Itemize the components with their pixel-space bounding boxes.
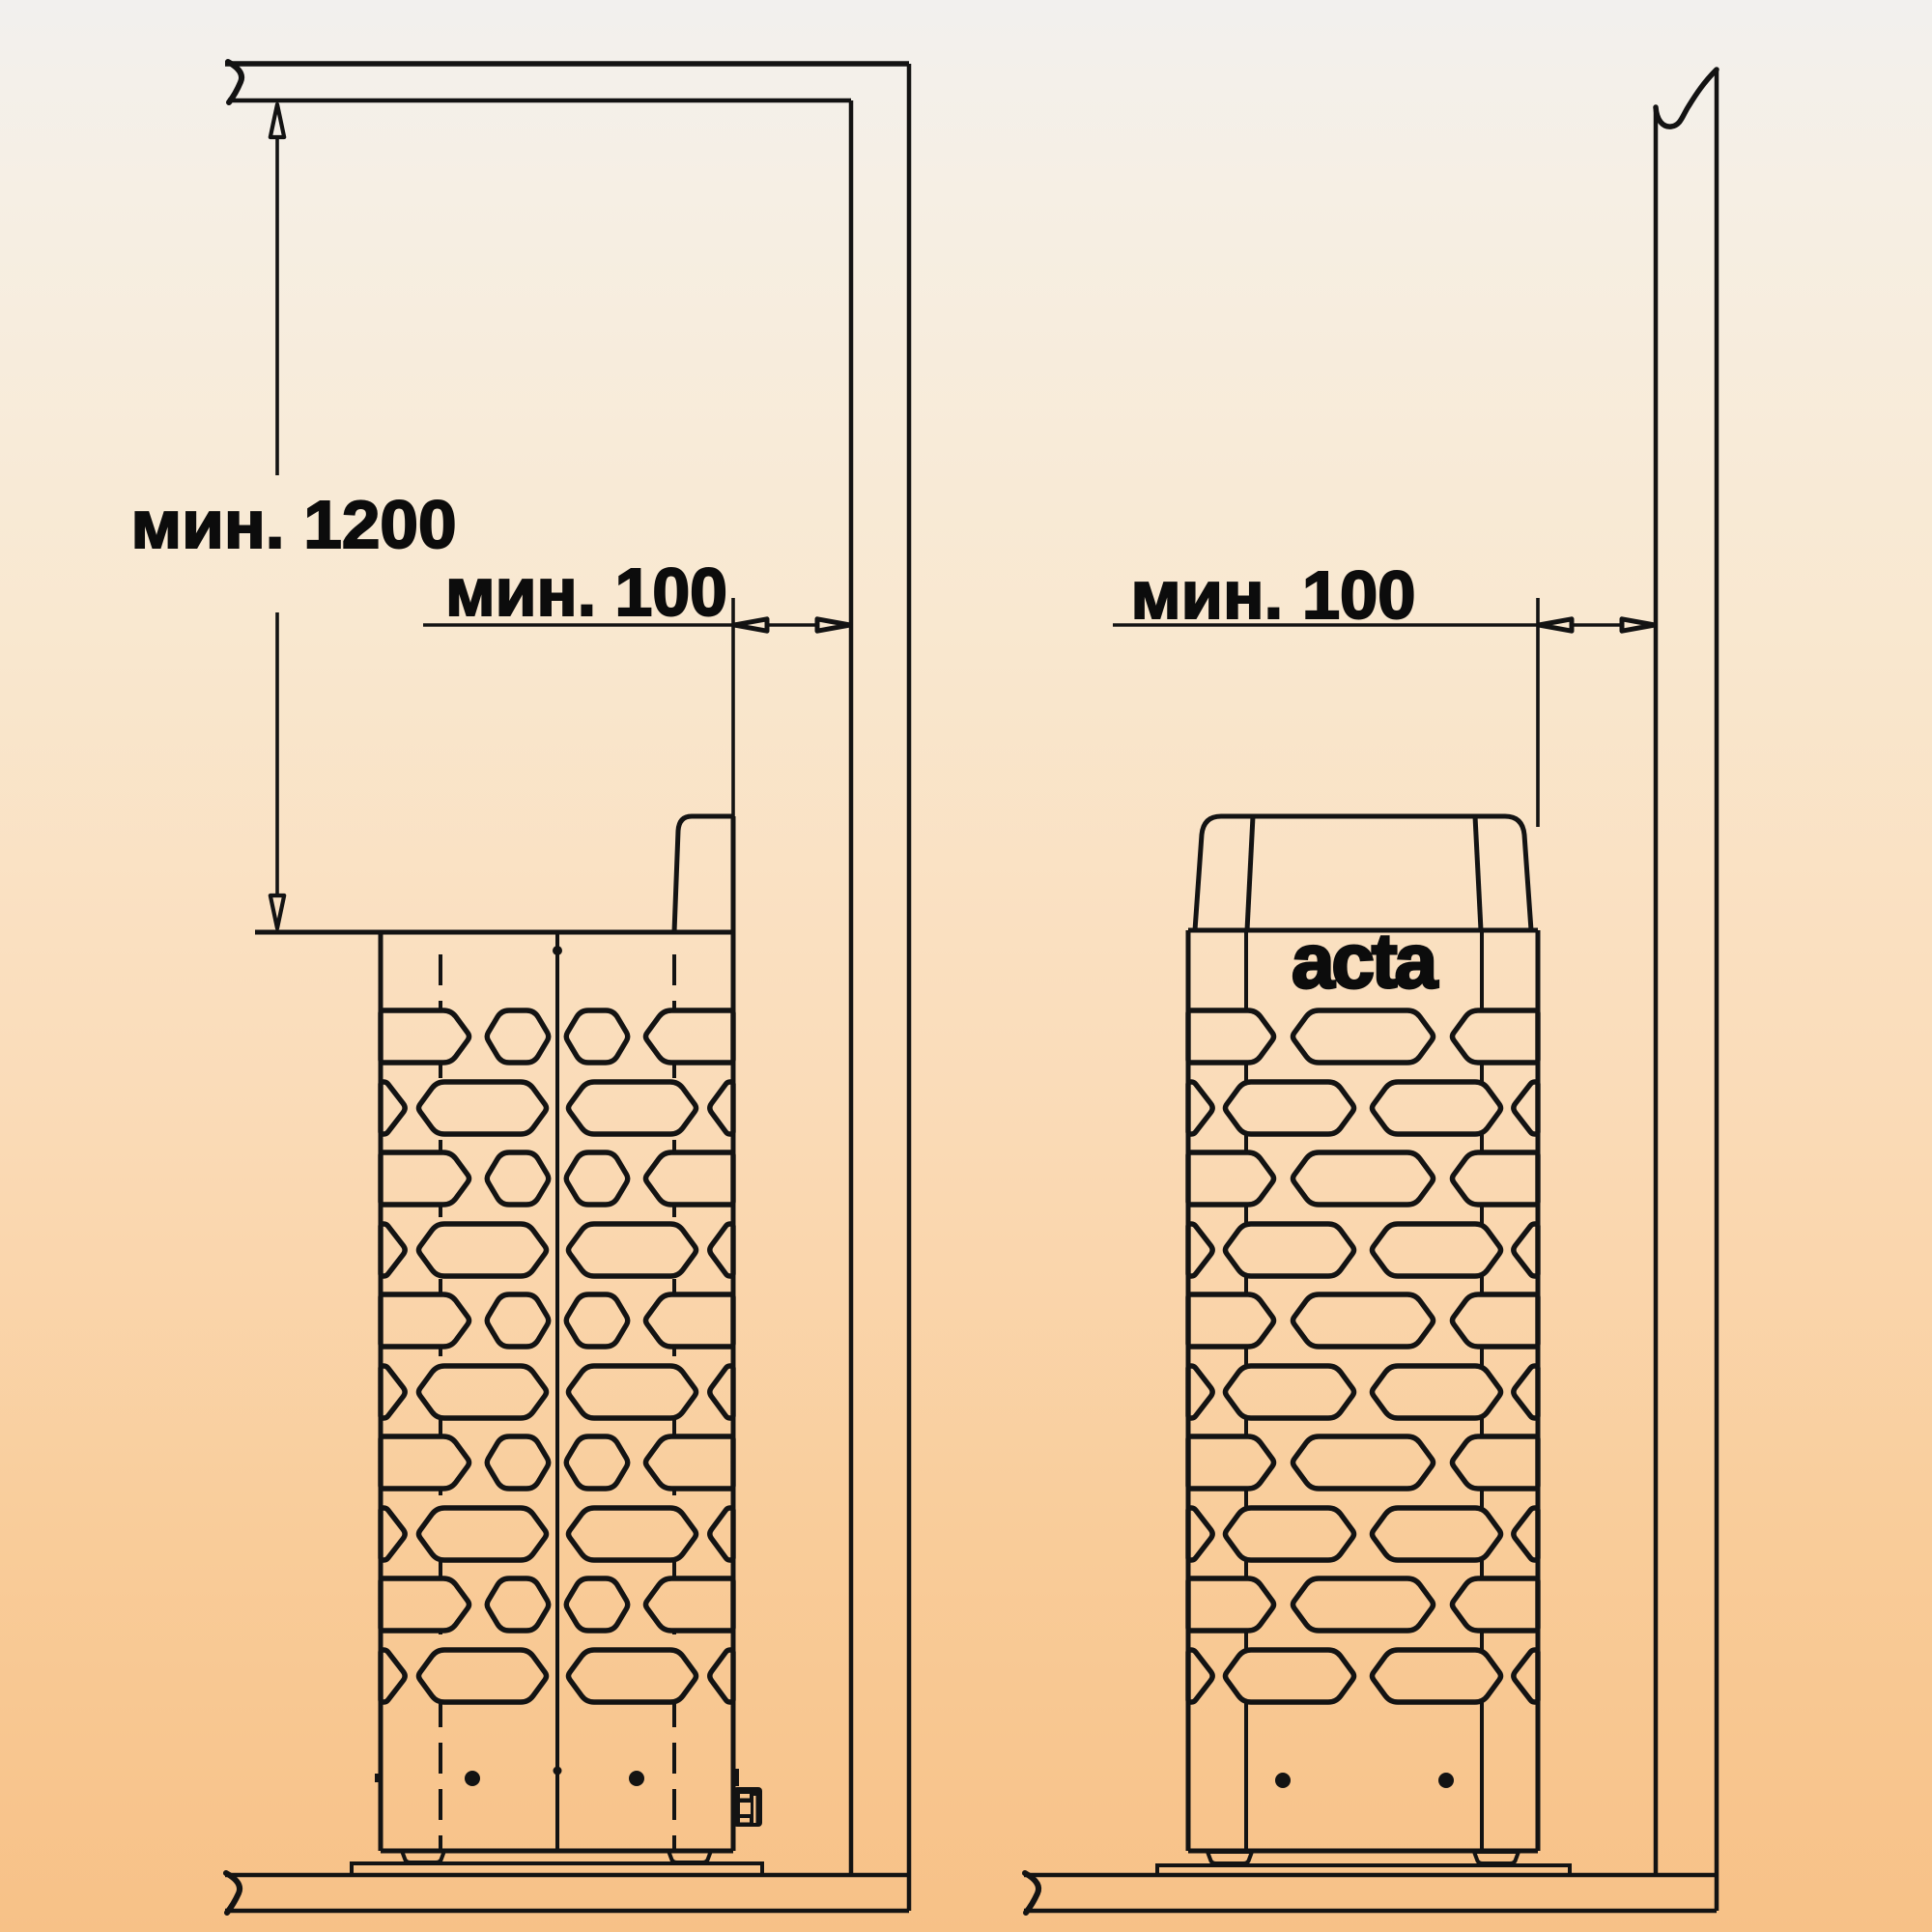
svg-text:acta: acta <box>1292 918 1438 1004</box>
svg-text:мин. 1200: мин. 1200 <box>131 487 457 562</box>
svg-text:мин. 100: мин. 100 <box>445 554 727 630</box>
svg-text:мин. 100: мин. 100 <box>1131 557 1416 633</box>
